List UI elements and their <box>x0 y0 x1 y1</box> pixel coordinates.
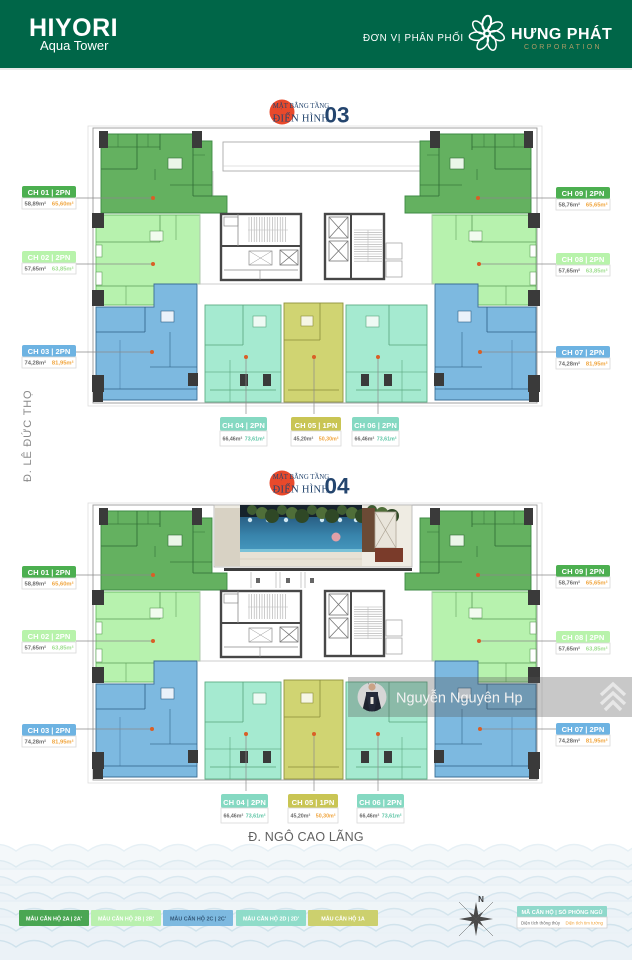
svg-text:CH 06 | 2PN: CH 06 | 2PN <box>354 421 397 430</box>
svg-text:74,28m²: 74,28m² <box>25 738 47 745</box>
svg-text:74,28m²: 74,28m² <box>559 737 581 744</box>
svg-text:66,46m²: 66,46m² <box>355 436 375 442</box>
svg-text:CH 07 | 2PN: CH 07 | 2PN <box>562 348 605 357</box>
svg-text:MẪU CĂN HỘ 2C | 2C': MẪU CĂN HỘ 2C | 2C' <box>170 915 226 923</box>
svg-text:Đ. NGÔ CAO LÃNG: Đ. NGÔ CAO LÃNG <box>248 829 364 844</box>
svg-text:50,30m²: 50,30m² <box>316 813 336 819</box>
svg-text:73,61m²: 73,61m² <box>377 436 397 442</box>
svg-text:65,65m²: 65,65m² <box>586 201 608 208</box>
svg-text:58,89m²: 58,89m² <box>25 200 47 207</box>
svg-text:CH 04 | 2PN: CH 04 | 2PN <box>223 798 266 807</box>
svg-text:58,76m²: 58,76m² <box>559 201 581 208</box>
svg-text:65,60m²: 65,60m² <box>52 580 74 587</box>
svg-text:CH 05 | 1PN: CH 05 | 1PN <box>292 798 335 807</box>
svg-text:65,60m²: 65,60m² <box>52 200 74 207</box>
svg-text:CH 02 | 2PN: CH 02 | 2PN <box>28 632 71 641</box>
svg-text:73,61m²: 73,61m² <box>245 436 265 442</box>
svg-text:MẶT BẰNG TẦNG: MẶT BẰNG TẦNG <box>273 102 329 110</box>
svg-text:CH 01 | 2PN: CH 01 | 2PN <box>28 188 71 197</box>
svg-text:45,20m²: 45,20m² <box>294 436 314 442</box>
svg-text:57,65m²: 57,65m² <box>25 644 47 651</box>
svg-text:CH 08 | 2PN: CH 08 | 2PN <box>562 633 605 642</box>
svg-text:Diện tích thông thủy: Diện tích thông thủy <box>521 921 561 926</box>
svg-text:ĐƠN VỊ PHÂN PHỐI: ĐƠN VỊ PHÂN PHỐI <box>363 32 464 44</box>
svg-text:57,65m²: 57,65m² <box>559 267 581 274</box>
svg-text:63,85m²: 63,85m² <box>52 644 74 651</box>
svg-text:50,30m²: 50,30m² <box>319 436 339 442</box>
svg-text:57,65m²: 57,65m² <box>25 265 47 272</box>
svg-text:58,89m²: 58,89m² <box>25 580 47 587</box>
svg-text:81,95m²: 81,95m² <box>586 360 608 367</box>
svg-text:CH 07 | 2PN: CH 07 | 2PN <box>562 725 605 734</box>
svg-text:81,95m²: 81,95m² <box>586 737 608 744</box>
svg-text:CH 03 | 2PN: CH 03 | 2PN <box>28 347 71 356</box>
svg-text:81,95m²: 81,95m² <box>52 738 74 745</box>
svg-text:63,85m²: 63,85m² <box>586 267 608 274</box>
svg-text:73,61m²: 73,61m² <box>382 813 402 819</box>
svg-text:MẪU CĂN HỘ 2B | 2B': MẪU CĂN HỘ 2B | 2B' <box>98 915 154 923</box>
svg-text:MẪU CĂN HỘ 1A: MẪU CĂN HỘ 1A <box>321 915 365 923</box>
svg-text:CH 02 | 2PN: CH 02 | 2PN <box>28 253 71 262</box>
svg-text:66,46m²: 66,46m² <box>223 436 243 442</box>
svg-text:74,28m²: 74,28m² <box>25 359 47 366</box>
svg-text:MẪU CĂN HỘ 2A | 2A': MẪU CĂN HỘ 2A | 2A' <box>26 915 82 923</box>
svg-text:58,76m²: 58,76m² <box>559 579 581 586</box>
svg-text:CH 01 | 2PN: CH 01 | 2PN <box>28 568 71 577</box>
svg-text:CH 06 | 2PN: CH 06 | 2PN <box>359 798 402 807</box>
svg-text:MÃ CĂN HỘ | SỐ PHÒNG NGỦ: MÃ CĂN HỘ | SỐ PHÒNG NGỦ <box>521 908 602 916</box>
svg-text:73,61m²: 73,61m² <box>246 813 266 819</box>
svg-text:CH 03 | 2PN: CH 03 | 2PN <box>28 726 71 735</box>
svg-text:CORPORATION: CORPORATION <box>524 44 602 51</box>
svg-text:N: N <box>478 895 484 904</box>
svg-text:04: 04 <box>325 474 351 499</box>
svg-text:65,65m²: 65,65m² <box>586 579 608 586</box>
svg-text:ĐIỂN HÌNH: ĐIỂN HÌNH <box>273 483 330 496</box>
svg-text:Đ. LÊ ĐỨC THỌ: Đ. LÊ ĐỨC THỌ <box>21 390 34 482</box>
svg-text:66,46m²: 66,46m² <box>360 813 380 819</box>
svg-text:CH 05 | 1PN: CH 05 | 1PN <box>295 421 338 430</box>
svg-text:66,46m²: 66,46m² <box>224 813 244 819</box>
svg-text:Nguyễn Nguyên Hp: Nguyễn Nguyên Hp <box>396 690 523 707</box>
svg-text:HƯNG PHÁT: HƯNG PHÁT <box>511 24 612 43</box>
svg-text:63,85m²: 63,85m² <box>52 265 74 272</box>
svg-text:MẪU CĂN HỘ 2D | 2D': MẪU CĂN HỘ 2D | 2D' <box>243 915 299 923</box>
svg-text:03: 03 <box>325 103 350 128</box>
svg-text:Aqua Tower: Aqua Tower <box>40 38 109 53</box>
svg-text:45,20m²: 45,20m² <box>291 813 311 819</box>
svg-text:ĐIỂN HÌNH: ĐIỂN HÌNH <box>273 112 330 125</box>
svg-text:CH 04 | 2PN: CH 04 | 2PN <box>222 421 265 430</box>
svg-text:CH 09 | 2PN: CH 09 | 2PN <box>562 189 605 198</box>
svg-text:81,95m²: 81,95m² <box>52 359 74 366</box>
svg-text:MẶT BẰNG TẦNG: MẶT BẰNG TẦNG <box>273 473 329 481</box>
svg-text:CH 08 | 2PN: CH 08 | 2PN <box>562 255 605 264</box>
svg-text:74,28m²: 74,28m² <box>559 360 581 367</box>
svg-text:63,85m²: 63,85m² <box>586 645 608 652</box>
svg-text:CH 09 | 2PN: CH 09 | 2PN <box>562 567 605 576</box>
svg-text:Diện tích tim tường: Diện tích tim tường <box>565 921 603 926</box>
svg-text:57,65m²: 57,65m² <box>559 645 581 652</box>
